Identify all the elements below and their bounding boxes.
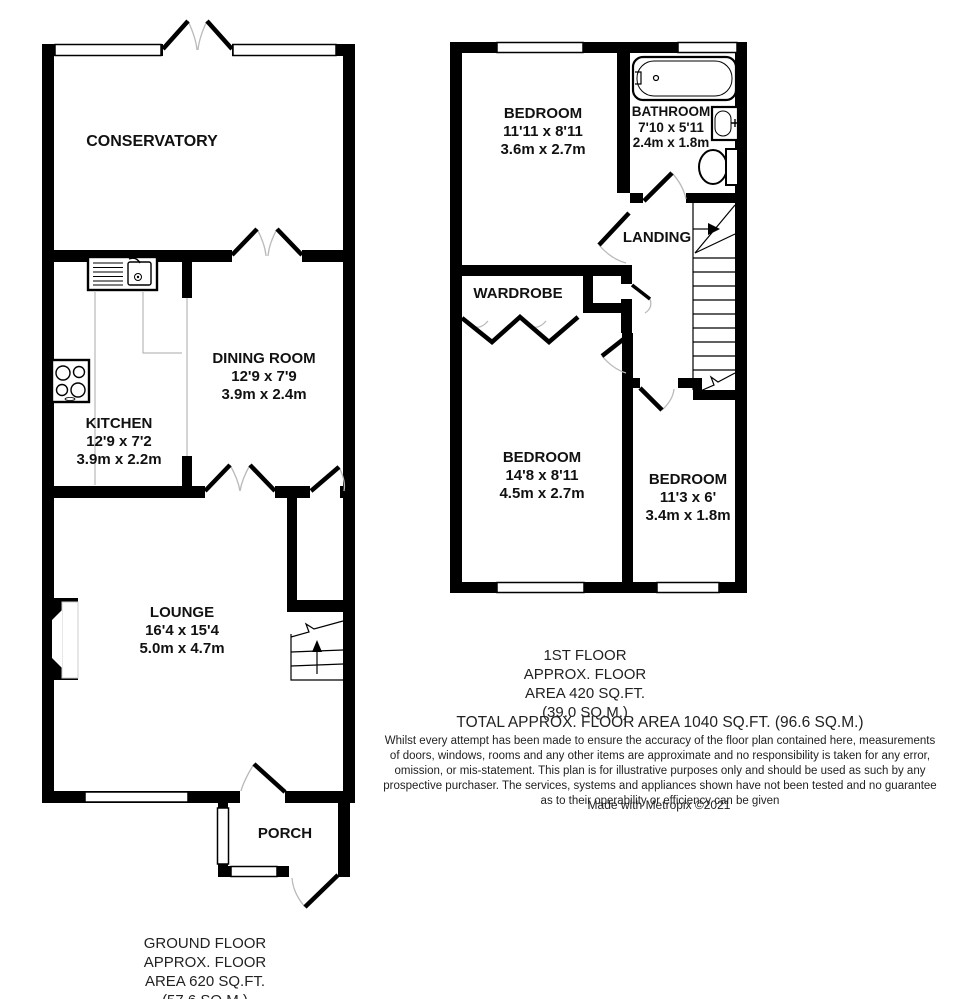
room-label-bathroom: BATHROOM 7'10 x 5'11 2.4m x 1.8m: [632, 104, 711, 151]
total-floor-area: TOTAL APPROX. FLOOR AREA 1040 SQ.FT. (96…: [456, 714, 863, 732]
first-floor-area-note: 1ST FLOOR APPROX. FLOOR AREA 420 SQ.FT. …: [524, 646, 647, 722]
room-label-wardrobe: WARDROBE: [473, 285, 562, 303]
room-dims-ft: 12'9 x 7'9: [212, 368, 315, 386]
kitchen-sink-icon: [88, 257, 157, 290]
room-name: PORCH: [258, 825, 312, 843]
room-dims-ft: 12'9 x 7'2: [76, 433, 161, 451]
metropix-credit: Made with Metropix ©2021: [588, 798, 731, 812]
toilet-icon: [699, 149, 738, 185]
room-dims-m: 3.9m x 2.4m: [212, 386, 315, 404]
room-name: DINING ROOM: [212, 350, 315, 368]
room-name: BEDROOM: [645, 471, 730, 489]
room-label-conservatory: CONSERVATORY: [86, 133, 218, 151]
room-name: BEDROOM: [499, 449, 584, 467]
room-name: KITCHEN: [76, 415, 161, 433]
room-label-bedroom-2: BEDROOM 14'8 x 8'11 4.5m x 2.7m: [499, 449, 584, 503]
room-dims-m: 3.6m x 2.7m: [500, 141, 585, 159]
floorplan-page: CONSERVATORY DINING ROOM 12'9 x 7'9 3.9m…: [0, 0, 980, 999]
room-label-porch: PORCH: [258, 825, 312, 843]
first-floor-doors: [599, 173, 672, 410]
room-dims-m: 5.0m x 4.7m: [139, 640, 224, 658]
room-dims-ft: 11'3 x 6': [645, 489, 730, 507]
bathtub-icon: [633, 57, 736, 100]
room-dims-m: 3.9m x 2.2m: [76, 451, 161, 469]
room-label-bedroom-3: BEDROOM 11'3 x 6' 3.4m x 1.8m: [645, 471, 730, 525]
wardrobe-bifold-doors: [462, 317, 578, 342]
ground-floor-area-note: GROUND FLOOR APPROX. FLOOR AREA 620 SQ.F…: [144, 934, 267, 999]
room-label-bedroom-1: BEDROOM 11'11 x 8'11 3.6m x 2.7m: [500, 105, 585, 159]
room-dims-ft: 7'10 x 5'11: [632, 120, 711, 136]
hob-icon: [52, 360, 89, 402]
room-label-kitchen: KITCHEN 12'9 x 7'2 3.9m x 2.2m: [76, 415, 161, 469]
room-label-dining-room: DINING ROOM 12'9 x 7'9 3.9m x 2.4m: [212, 350, 315, 404]
room-name: BEDROOM: [500, 105, 585, 123]
room-dims-m: 2.4m x 1.8m: [632, 135, 711, 151]
room-dims-ft: 14'8 x 8'11: [499, 467, 584, 485]
room-name: BATHROOM: [632, 104, 711, 120]
room-label-lounge: LOUNGE 16'4 x 15'4 5.0m x 4.7m: [139, 604, 224, 658]
room-dims-m: 4.5m x 2.7m: [499, 485, 584, 503]
room-name: LANDING: [623, 229, 691, 247]
room-name: CONSERVATORY: [86, 133, 218, 151]
room-dims-ft: 16'4 x 15'4: [139, 622, 224, 640]
room-dims-ft: 11'11 x 8'11: [500, 123, 585, 141]
sink-icon: [712, 107, 738, 140]
stairs-up-arrow-icon: [312, 640, 322, 652]
room-dims-m: 3.4m x 1.8m: [645, 507, 730, 525]
room-label-landing: LANDING: [623, 229, 691, 247]
room-name: WARDROBE: [473, 285, 562, 303]
room-name: LOUNGE: [139, 604, 224, 622]
